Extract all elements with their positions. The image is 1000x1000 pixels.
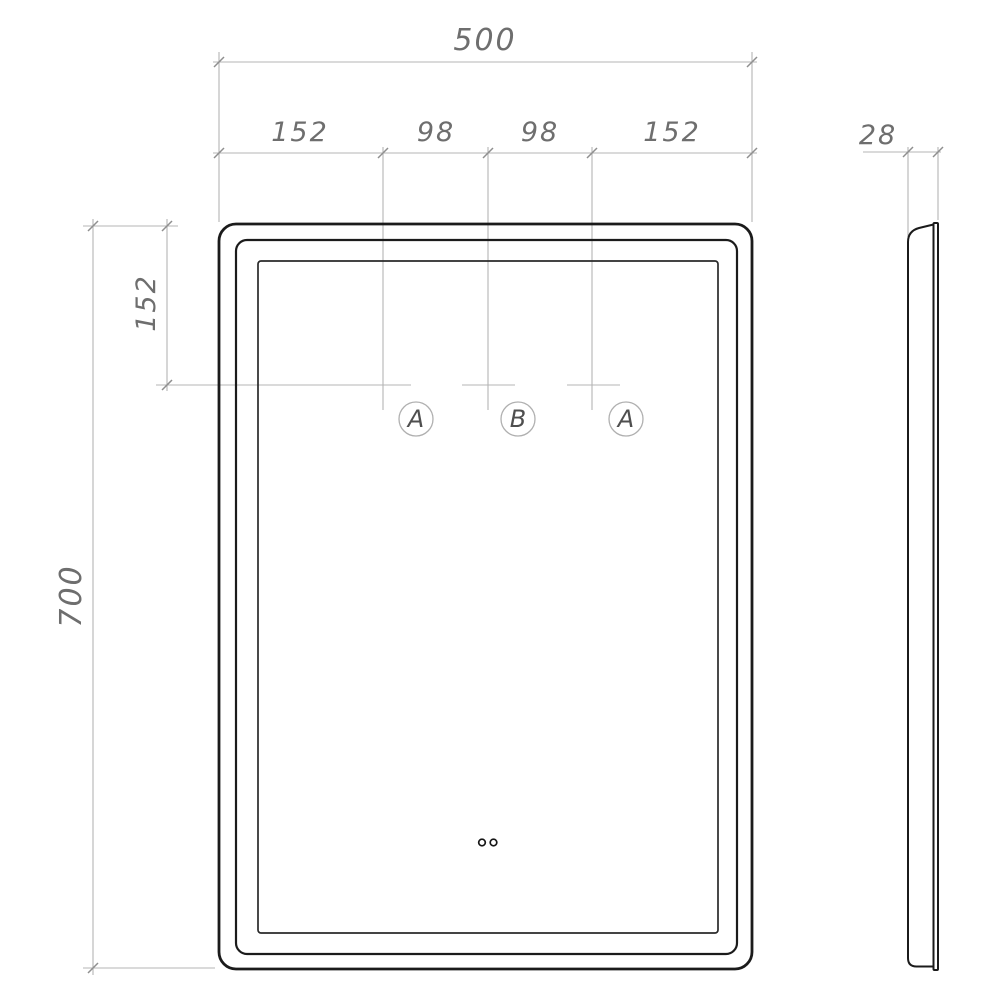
side-glass-pane [934, 223, 939, 970]
callout-label-sensor-3: A [616, 405, 634, 433]
callout-label-sensor-1: A [406, 405, 424, 433]
dimension-lines [83, 52, 941, 975]
dim-label-segment-3: 98 [521, 117, 559, 148]
dim-label-top-offset: 152 [131, 274, 162, 332]
dim-label-total-width: 500 [453, 23, 516, 58]
side-body-profile [908, 225, 934, 967]
dim-label-segment-1: 152 [271, 117, 329, 148]
mirror-dimension-drawing: 500 152 98 98 152 152 700 28 A B A [0, 0, 1000, 1000]
mirror-inner-frame [236, 240, 737, 954]
dim-label-segment-2: 98 [417, 117, 455, 148]
mirror-outer-frame [219, 224, 752, 969]
dim-label-segment-4: 152 [643, 117, 701, 148]
mirror-side-view [908, 223, 938, 970]
dim-label-total-height: 700 [54, 564, 89, 627]
mirror-front-view [219, 224, 752, 969]
callout-label-sensor-2: B [510, 405, 526, 433]
sensor-callouts: A B A [399, 402, 643, 436]
touch-dots-icon [479, 839, 497, 846]
dim-label-depth: 28 [859, 120, 897, 151]
technical-drawing-page: 500 152 98 98 152 152 700 28 A B A [0, 0, 1000, 1000]
dimension-ticks [88, 57, 943, 973]
